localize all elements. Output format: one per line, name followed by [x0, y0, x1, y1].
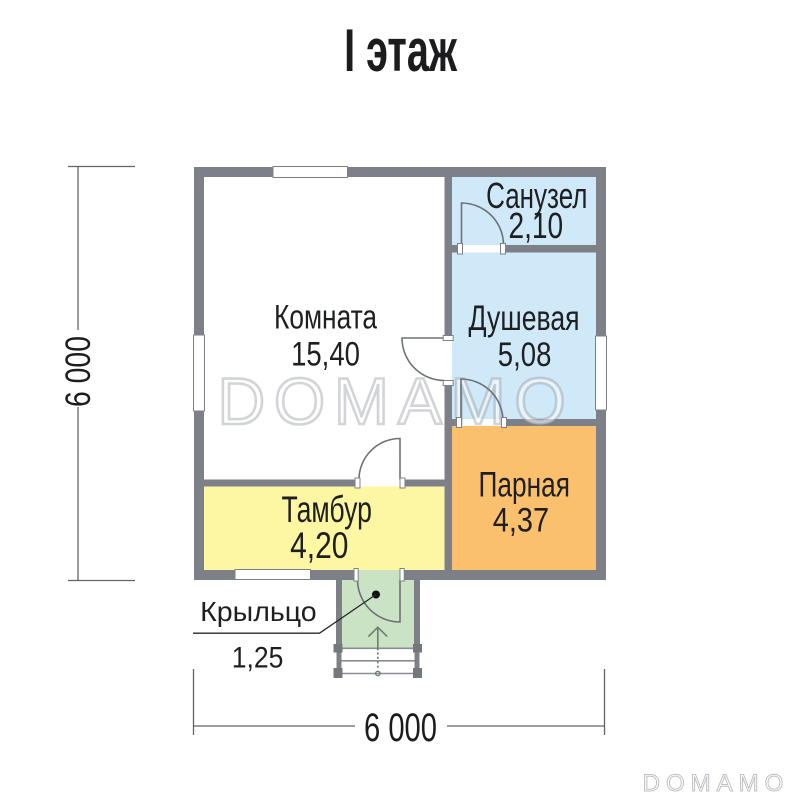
svg-text:6 000: 6 000 — [58, 336, 98, 407]
svg-text:Душевая: Душевая — [468, 298, 579, 338]
svg-text:I этаж: I этаж — [344, 17, 458, 84]
svg-text:1,25: 1,25 — [232, 641, 284, 675]
svg-text:4,20: 4,20 — [290, 526, 348, 567]
svg-text:2,10: 2,10 — [508, 206, 563, 246]
svg-text:15,40: 15,40 — [291, 335, 360, 373]
svg-text:DOMAMO: DOMAMO — [643, 770, 790, 797]
svg-text:6 000: 6 000 — [364, 706, 437, 751]
svg-text:Крыльцо: Крыльцо — [200, 595, 316, 627]
svg-text:5,08: 5,08 — [498, 335, 552, 373]
svg-text:4,37: 4,37 — [493, 500, 549, 539]
svg-text:Тамбур: Тамбур — [282, 489, 372, 530]
svg-text:Парная: Парная — [478, 465, 569, 505]
svg-text:Комната: Комната — [274, 298, 377, 336]
svg-text:DOMAMO: DOMAMO — [217, 364, 574, 438]
